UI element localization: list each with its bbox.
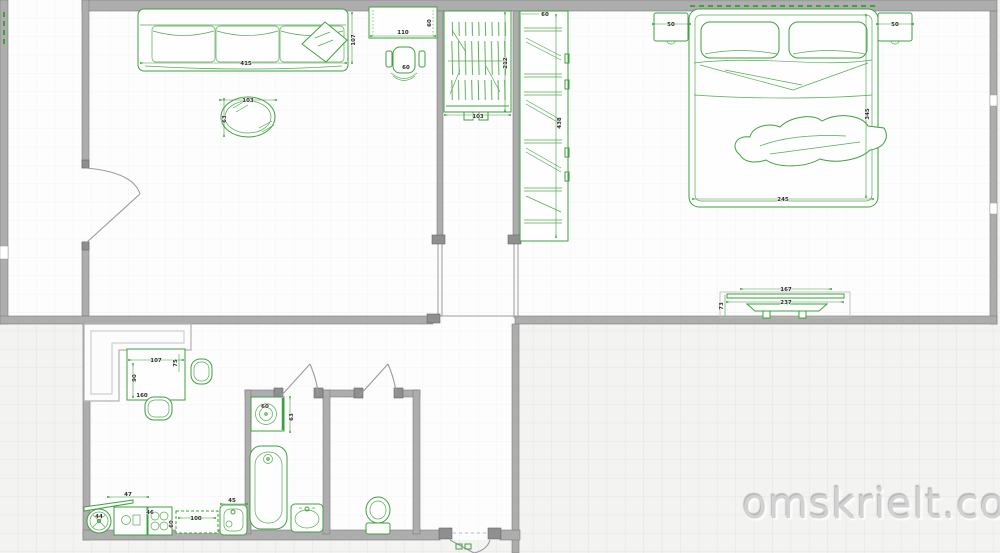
- kitchen-sink[interactable]: [220, 505, 247, 535]
- hallway-closet[interactable]: [444, 11, 511, 120]
- bed[interactable]: [689, 9, 886, 207]
- jamb: [488, 528, 501, 539]
- wall-kitchen-right: [512, 324, 519, 553]
- wall-kitchen-bottom-right: [500, 530, 520, 540]
- dim-counter-depth: 60: [169, 520, 175, 528]
- jamb: [439, 528, 452, 539]
- dim-counter-width: 100: [190, 516, 202, 522]
- chair-right[interactable]: [191, 359, 212, 384]
- dim-nightstand-right: 50: [891, 22, 899, 28]
- washing-machine[interactable]: [251, 397, 284, 431]
- wall-balcony-lower: [82, 242, 89, 316]
- jamb: [508, 235, 521, 244]
- wall-balcony-upper: [82, 0, 89, 168]
- wall-living-hallway: [437, 11, 443, 240]
- dim-sofa-width: 415: [240, 61, 252, 67]
- dim-radiator-length: 237: [780, 300, 792, 306]
- dim-desk-width: 110: [397, 30, 409, 36]
- dim-wardrobe-width: 60: [541, 12, 549, 18]
- wall-mid-left: [0, 316, 433, 324]
- floor-plan-canvas: 415 107 110 60 60 103 63 212 103 60 438 …: [0, 0, 1000, 553]
- dim-hood-fan: 44: [95, 514, 103, 520]
- jamb: [82, 160, 89, 168]
- dim-radiator-width: 167: [780, 287, 792, 293]
- floor-plan-drawing: 415 107 110 60 60 103 63 212 103 60 438 …: [0, 0, 1000, 553]
- nightstand-right[interactable]: [878, 13, 912, 44]
- dim-chair: 60: [402, 65, 410, 71]
- dim-sofa-depth: 107: [351, 34, 357, 46]
- chair-bottom[interactable]: [145, 397, 172, 420]
- dim-table-side: 90: [132, 374, 138, 382]
- dim-closet-depth: 212: [503, 57, 509, 69]
- wall-toilet-right: [413, 390, 420, 534]
- bathtub[interactable]: [250, 446, 287, 529]
- wall-hallway-bedroom: [513, 11, 519, 240]
- wall-joint: [990, 95, 997, 106]
- dim-washer-depth: 63: [289, 413, 295, 421]
- bathroom-sink[interactable]: [291, 504, 323, 532]
- radiator-leg: [799, 311, 806, 318]
- kitchen-counter[interactable]: [176, 511, 218, 533]
- dim-corner-counter: 47: [124, 492, 132, 498]
- toilet[interactable]: [366, 497, 390, 534]
- dim-bed-width: 245: [777, 197, 789, 203]
- wall-left-outer: [0, 0, 8, 324]
- wall-joint: [0, 246, 8, 259]
- jamb: [427, 314, 440, 323]
- jamb: [432, 235, 445, 244]
- jamb: [314, 388, 323, 398]
- wall-joint: [990, 203, 997, 214]
- dim-washer: 60: [261, 404, 269, 410]
- base-cabinet[interactable]: [114, 507, 147, 535]
- dim-table-depth: 75: [173, 359, 179, 367]
- hood-fan[interactable]: [87, 509, 111, 533]
- dim-oval-width: 103: [242, 98, 254, 104]
- dim-nightstand-left: 50: [667, 22, 675, 28]
- dim-table-width: 107: [150, 358, 162, 364]
- watermark: omskrielt.com: [742, 480, 1000, 528]
- wall-bathroom-toilet: [323, 390, 330, 534]
- wall-right-outer: [990, 11, 997, 324]
- dim-sink: 45: [228, 498, 236, 504]
- dim-bed-length: 345: [865, 108, 871, 120]
- dim-radiator-depth: 73: [719, 302, 725, 310]
- dim-stove: 46: [146, 510, 154, 516]
- radiator-leg: [763, 311, 770, 318]
- dim-table-front: 160: [136, 393, 148, 399]
- dim-desk-depth: 60: [427, 19, 433, 27]
- dim-oval-depth: 63: [222, 115, 228, 123]
- nightstand-left[interactable]: [654, 13, 688, 44]
- dim-closet-width: 103: [472, 114, 484, 120]
- jamb: [82, 242, 89, 250]
- dim-wardrobe-length: 438: [557, 117, 563, 129]
